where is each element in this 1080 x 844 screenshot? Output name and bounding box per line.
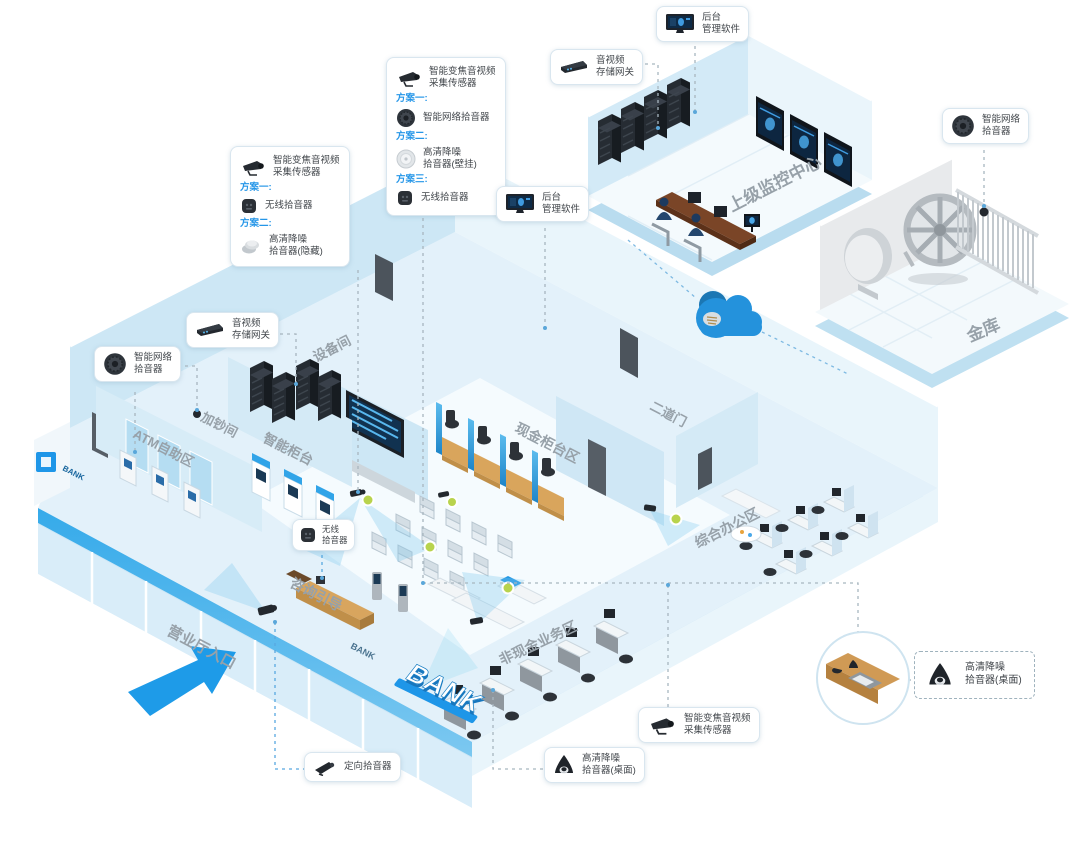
callout-text: 管理软件 [542,204,580,216]
callout-text: 智能变焦音视频 [273,155,340,167]
plan-label: 方案二: [240,218,272,230]
callout-desktop-mic-right: 高清降噪拾音器(桌面) [914,651,1035,699]
wireless-mic-icon [240,197,258,215]
callout-text: 后台 [542,192,580,204]
zoom-camera-icon [396,68,422,88]
callout-text: 智能网络 [134,352,172,364]
callout-storage-gateway-top: 音视频存储网关 [550,49,643,85]
vault-mic-device [980,208,989,217]
callout-wireless-mic-hall: 无线拾音器 [292,519,355,551]
callout-text: 智能变焦音视频 [684,713,751,725]
monitor-icon [505,193,535,215]
directional-mic-icon [313,758,337,776]
callout-text: 无线拾音器 [421,192,469,204]
wireless-mic-icon [396,189,414,207]
storage-gateway-icon [559,58,589,76]
callout-text: 拾音器(桌面) [965,675,1022,688]
callout-text: 采集传感器 [273,167,340,179]
main-building: BANK BANK [34,150,938,817]
bank-logo-glyph [41,457,51,467]
callout-text: 存储网关 [232,330,270,342]
network-mic-icon [103,352,127,376]
callout-text: 高清降噪 [965,662,1022,675]
callout-network-mic-vault: 智能网络拾音器 [942,108,1029,144]
callout-text: 高清降噪 [582,753,636,765]
zoom-camera-icon [647,714,677,736]
isometric-scene: BANK BANK [0,0,1080,844]
callout-text: 存储网关 [596,67,634,79]
door-hall [588,439,606,496]
hidden-mic-icon [240,237,262,255]
zoom-camera-icon [240,157,266,177]
callout-text: 采集传感器 [684,725,751,737]
network-mic-icon [951,114,975,138]
callout-backend-software-top: 后台管理软件 [656,6,749,42]
callout-text: 无线 [322,524,348,535]
callout-text: 拾音器(隐藏) [269,246,323,258]
door-office [698,447,712,490]
callout-text: 音视频 [232,318,270,330]
monitor-icon [665,13,695,35]
callout-directional-mic: 定向拾音器 [304,752,401,782]
wireless-mic-icon [299,526,317,544]
desktop-mic-icon [553,754,575,776]
callout-text: 拾音器 [134,364,172,376]
magnifier-circle [817,632,909,724]
callout-text: 拾音器(壁挂) [423,159,477,171]
callout-text: 无线拾音器 [265,200,313,212]
callout-text: 采集传感器 [429,78,496,90]
callout-storage-gateway-left: 音视频存储网关 [186,312,279,348]
callout-text: 高清降噪 [423,147,477,159]
callout-text: 拾音器 [982,126,1020,138]
callout-plan-box-left: 智能变焦音视频采集传感器 方案一: 无线拾音器 方案二: 高清降噪拾音器(隐藏) [230,146,350,267]
plan-label: 方案一: [240,182,272,194]
callout-desktop-mic-bottom: 高清降噪拾音器(桌面) [544,747,645,783]
plan-label: 方案一: [396,93,428,105]
callout-text: 定向拾音器 [344,761,392,773]
callout-text: 智能网络拾音器 [423,112,490,124]
callout-zoom-sensor-bottom: 智能变焦音视频采集传感器 [638,707,760,743]
callout-backend-software-wall: 后台管理软件 [496,186,589,222]
door-shadow [908,273,968,285]
callout-text: 智能网络 [982,114,1020,126]
callout-text: 高清降噪 [269,234,323,246]
desktop-mic-icon [927,662,953,688]
storage-gateway-icon [195,321,225,339]
vault-door-opening-inner [845,235,883,281]
callout-text: 拾音器 [322,535,348,546]
plan-label: 方案二: [396,131,428,143]
plan-label: 方案三: [396,174,428,186]
callout-text: 音视频 [596,55,634,67]
callout-text: 管理软件 [702,24,740,36]
callout-text: 智能变焦音视频 [429,66,496,78]
callout-network-mic-left: 智能网络拾音器 [94,346,181,382]
callout-plan-box-top: 智能变焦音视频采集传感器 方案一: 智能网络拾音器 方案二: 高清降噪拾音器(壁… [386,57,506,216]
callout-text: 拾音器(桌面) [582,765,636,777]
callout-text: 后台 [702,12,740,24]
bank-audio-solution-diagram: BANK BANK [0,0,1080,844]
network-mic-icon [396,108,416,128]
wall-mic-icon [396,149,416,169]
